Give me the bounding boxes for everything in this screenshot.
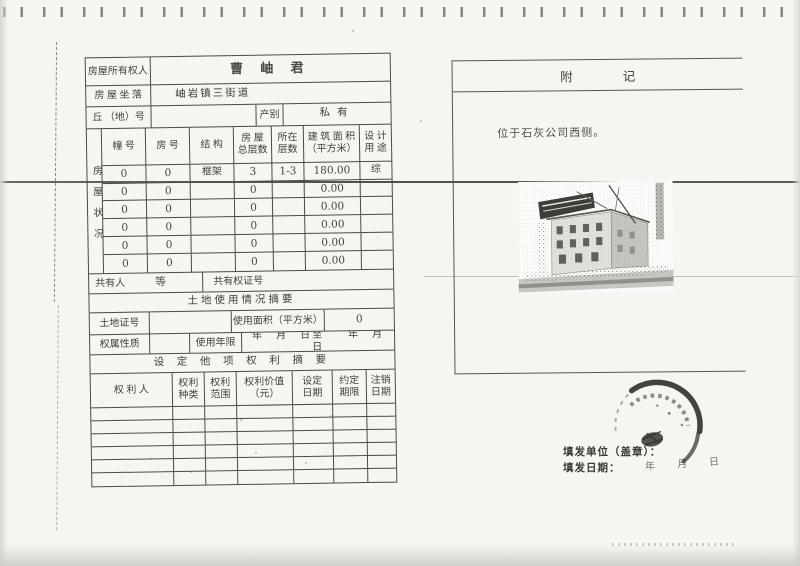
housing-cell [273, 198, 305, 215]
housing-cell [273, 181, 305, 198]
ownership-nature-label: 权属性质 [90, 334, 150, 354]
page-fold-line [54, 42, 57, 302]
building-photo [518, 180, 674, 293]
housing-cell: 0 [146, 165, 190, 183]
owner-name-value: 曹 岫 君 [151, 54, 390, 85]
housing-cell [191, 217, 235, 235]
housing-cell [273, 234, 305, 251]
coowner-label: 共有人 [95, 278, 125, 290]
housing-header: 房 号 [146, 128, 191, 164]
official-seal-stamp [602, 376, 714, 480]
housing-cell: 0 [103, 183, 147, 201]
designed-use-value: 综 [360, 161, 391, 178]
scan-edge-shadow [792, 0, 800, 566]
housing-cell [361, 233, 392, 250]
scan-edge-shadow [0, 545, 800, 566]
rights-header: 注销 日期 [367, 370, 396, 403]
rights-header-row: 权 利 人 权利 种类 权利 范围 权利价值 （元） 设定 日期 约定 期限 注… [91, 370, 395, 409]
use-term-label: 使用年限 [190, 333, 242, 353]
housing-cell [361, 179, 392, 196]
housing-status-block: 房屋状况 幢 号 房 号 结 构 房 屋 总层数 所在 层数 建 筑 面 积 （… [87, 125, 393, 275]
land-cert-label: 土地证号 [90, 312, 150, 334]
rights-header: 设定 日期 [293, 371, 334, 405]
housing-header: 设 计 用 途 [360, 125, 392, 161]
location-value: 岫岩镇三街道 [151, 82, 390, 106]
category-label: 产别 [256, 104, 283, 125]
land-area-value: 0 [325, 309, 394, 331]
faint-footer-marks [612, 543, 734, 546]
housing-cell: 0 [235, 217, 273, 234]
rights-header: 权利价值 （元） [237, 371, 294, 405]
housing-header: 房 屋 总层数 [234, 126, 273, 162]
housing-cell: 0 [103, 201, 147, 219]
housing-cell: 0 [147, 236, 191, 254]
housing-cell: 1-3 [272, 163, 304, 180]
remarks-section: 附 记 位于石灰公司西侧。 [451, 58, 745, 375]
housing-cell [274, 252, 306, 270]
housing-cell [191, 235, 235, 253]
plot-number-value [151, 105, 256, 128]
rights-header: 权 利 人 [91, 373, 174, 407]
coowner-handwritten-value: 等 [155, 276, 167, 289]
housing-cell [273, 216, 305, 233]
remarks-text: 位于石灰公司西侧。 [497, 124, 605, 141]
housing-cell [361, 215, 392, 232]
land-area-label: 使用面积（平方米） [232, 310, 325, 332]
housing-header: 建 筑 面 积 （平方米） [304, 125, 361, 162]
binding-holes [3, 7, 797, 17]
housing-cell: 0.00 [305, 215, 361, 233]
building-area-value: 180.00 [304, 162, 360, 180]
rights-header: 权利 种类 [173, 373, 206, 406]
property-registration-table: 房屋所有权人 曹 岫 君 房 屋 坐 落 岫岩镇三街道 丘 （地）号 产别 私有… [85, 53, 398, 488]
housing-cell: 0 [104, 255, 148, 274]
page-fold-line [56, 305, 59, 530]
housing-cell [362, 251, 393, 269]
coowner-cert-label: 共有权证号 [203, 270, 393, 292]
housing-cell: 0 [147, 218, 191, 236]
housing-cell: 0 [147, 200, 191, 218]
plot-number-label: 丘 （地）号 [86, 106, 151, 128]
housing-cell: 3 [234, 163, 272, 180]
housing-cell: 0.00 [305, 198, 361, 216]
category-value: 私有 [283, 103, 390, 126]
housing-cell: 0 [235, 199, 273, 216]
housing-header-row: 幢 号 房 号 结 构 房 屋 总层数 所在 层数 建 筑 面 积 （平方米） … [102, 125, 392, 166]
location-label: 房 屋 坐 落 [86, 85, 151, 106]
housing-cell: 0 [235, 235, 273, 252]
rights-header: 约定 期限 [333, 370, 368, 404]
remarks-title: 附 记 [453, 59, 743, 93]
housing-cell: 0.00 [305, 180, 361, 198]
housing-cell: 0 [147, 182, 191, 200]
ownership-nature-value [150, 334, 190, 354]
land-cert-value [150, 311, 232, 333]
housing-cell: 0 [235, 181, 273, 198]
housing-cell: 0.00 [306, 251, 362, 270]
housing-cell [361, 197, 392, 214]
rights-header: 权利 范围 [205, 372, 238, 405]
housing-cell: 0.00 [305, 233, 361, 251]
housing-cell: 0 [103, 219, 147, 237]
housing-cell [191, 200, 235, 218]
structure-value: 框架 [190, 164, 234, 182]
housing-header: 所在 层数 [272, 126, 305, 162]
housing-cell: 0 [103, 237, 147, 255]
housing-header: 幢 号 [102, 128, 147, 164]
housing-cell: 0 [102, 165, 146, 183]
scan-edge-shadow [0, 0, 8, 566]
housing-cell: 0 [236, 253, 274, 271]
use-term-dates: 年 月 日至 年 月 日 [242, 331, 394, 352]
housing-cell [191, 182, 235, 200]
housing-cell [192, 253, 236, 272]
coowner-cell: 共有人 等 [89, 273, 203, 294]
owner-label: 房屋所有权人 [86, 57, 151, 85]
housing-cell: 0 [148, 254, 192, 273]
housing-header: 结 构 [190, 127, 235, 163]
